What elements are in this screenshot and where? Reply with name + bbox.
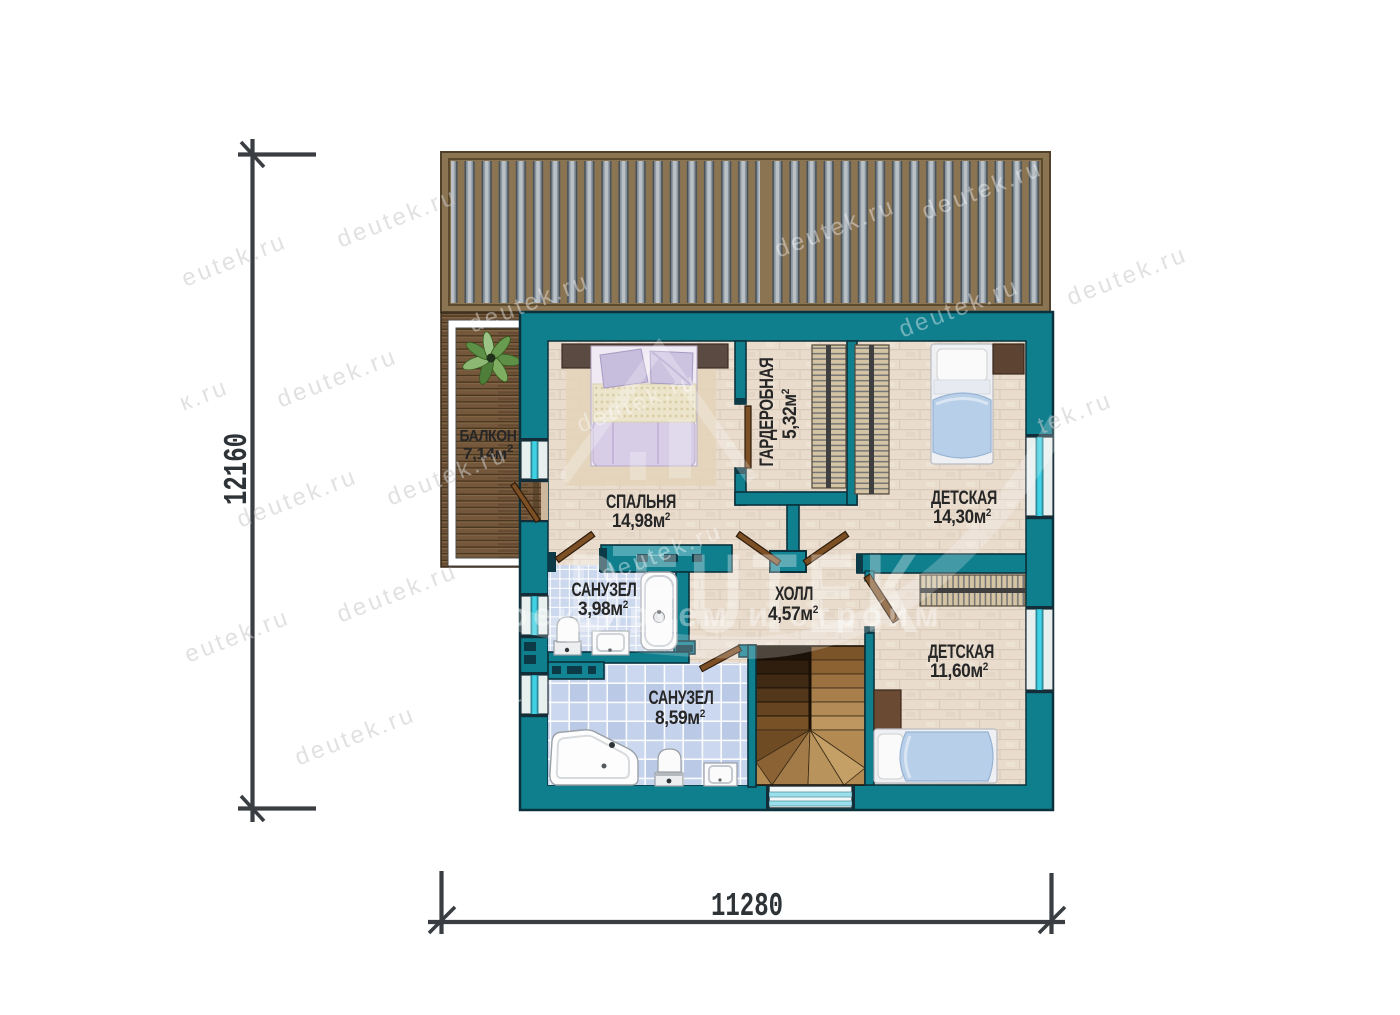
svg-text:8,59м2: 8,59м2 bbox=[655, 708, 705, 729]
svg-text:САНУЗЕЛ: САНУЗЕЛ bbox=[572, 580, 637, 601]
svg-text:ДЕТСКАЯ: ДЕТСКАЯ bbox=[928, 642, 994, 663]
svg-text:11280: 11280 bbox=[711, 888, 783, 925]
svg-text:ДЕТСКАЯ: ДЕТСКАЯ bbox=[931, 488, 997, 509]
svg-text:3,98м2: 3,98м2 bbox=[578, 599, 628, 620]
svg-text:11,60м2: 11,60м2 bbox=[930, 661, 988, 682]
svg-text:проектируем и строим: проектируем и строим bbox=[455, 596, 945, 633]
svg-text:СПАЛЬНЯ: СПАЛЬНЯ bbox=[606, 492, 676, 513]
svg-text:14,98м2: 14,98м2 bbox=[612, 511, 670, 532]
svg-text:САНУЗЕЛ: САНУЗЕЛ bbox=[649, 688, 714, 709]
svg-text:4,57м2: 4,57м2 bbox=[768, 604, 818, 625]
svg-text:ХОЛЛ: ХОЛЛ bbox=[775, 584, 813, 605]
svg-text:14,30м2: 14,30м2 bbox=[933, 507, 991, 528]
svg-text:5,32м2: 5,32м2 bbox=[780, 389, 801, 439]
svg-text:ГАРДЕРОБНАЯ: ГАРДЕРОБНАЯ bbox=[757, 358, 778, 467]
svg-text:12160: 12160 bbox=[219, 433, 256, 505]
